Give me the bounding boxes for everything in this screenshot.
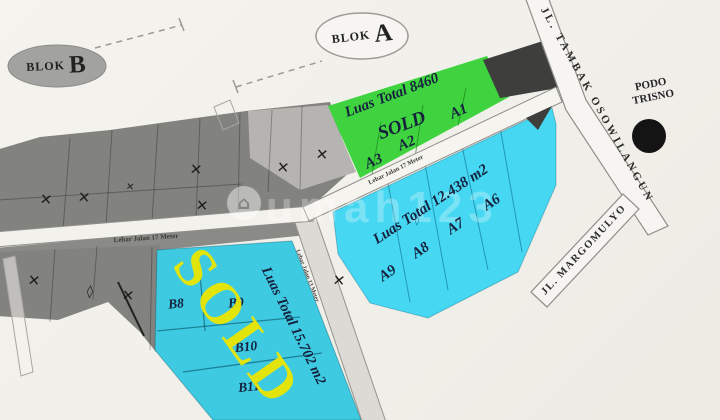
site-plan-map: ⌂ umah123 BLOK B BLOK A JL. TAMBAK OSOWI…: [0, 0, 720, 420]
blok-b-letter: B: [68, 52, 86, 78]
blok-a-prefix: BLOK: [331, 28, 371, 48]
crossed-plot-mark: ✕: [315, 147, 329, 163]
blok-b-prefix: BLOK: [26, 58, 65, 75]
podo-trisno-dot: [632, 119, 666, 153]
crossed-plot-mark: ✕: [77, 190, 91, 206]
blok-b-label: BLOK B: [26, 52, 87, 80]
crossed-plot-mark: ✕: [125, 183, 134, 194]
diamond-plot-mark: ◊: [86, 285, 94, 299]
crossed-plot-mark: ✕: [121, 288, 135, 304]
blok-a-letter: A: [373, 20, 394, 47]
crossed-plot-mark: ✕: [276, 160, 290, 176]
crossed-plot-mark: ✕: [39, 192, 53, 208]
crossed-plot-mark: ✕: [27, 273, 41, 289]
dashed-boundary-lines: [95, 18, 322, 93]
watermark-house-icon: ⌂: [227, 186, 261, 220]
crossed-plot-mark: ✕: [332, 273, 346, 289]
diamond-plot-mark: ◊: [475, 172, 480, 181]
diamond-plot-mark: ◊: [414, 217, 419, 226]
crossed-plot-mark: ✕: [189, 162, 203, 178]
crossed-plot-mark: ✕: [195, 198, 209, 214]
